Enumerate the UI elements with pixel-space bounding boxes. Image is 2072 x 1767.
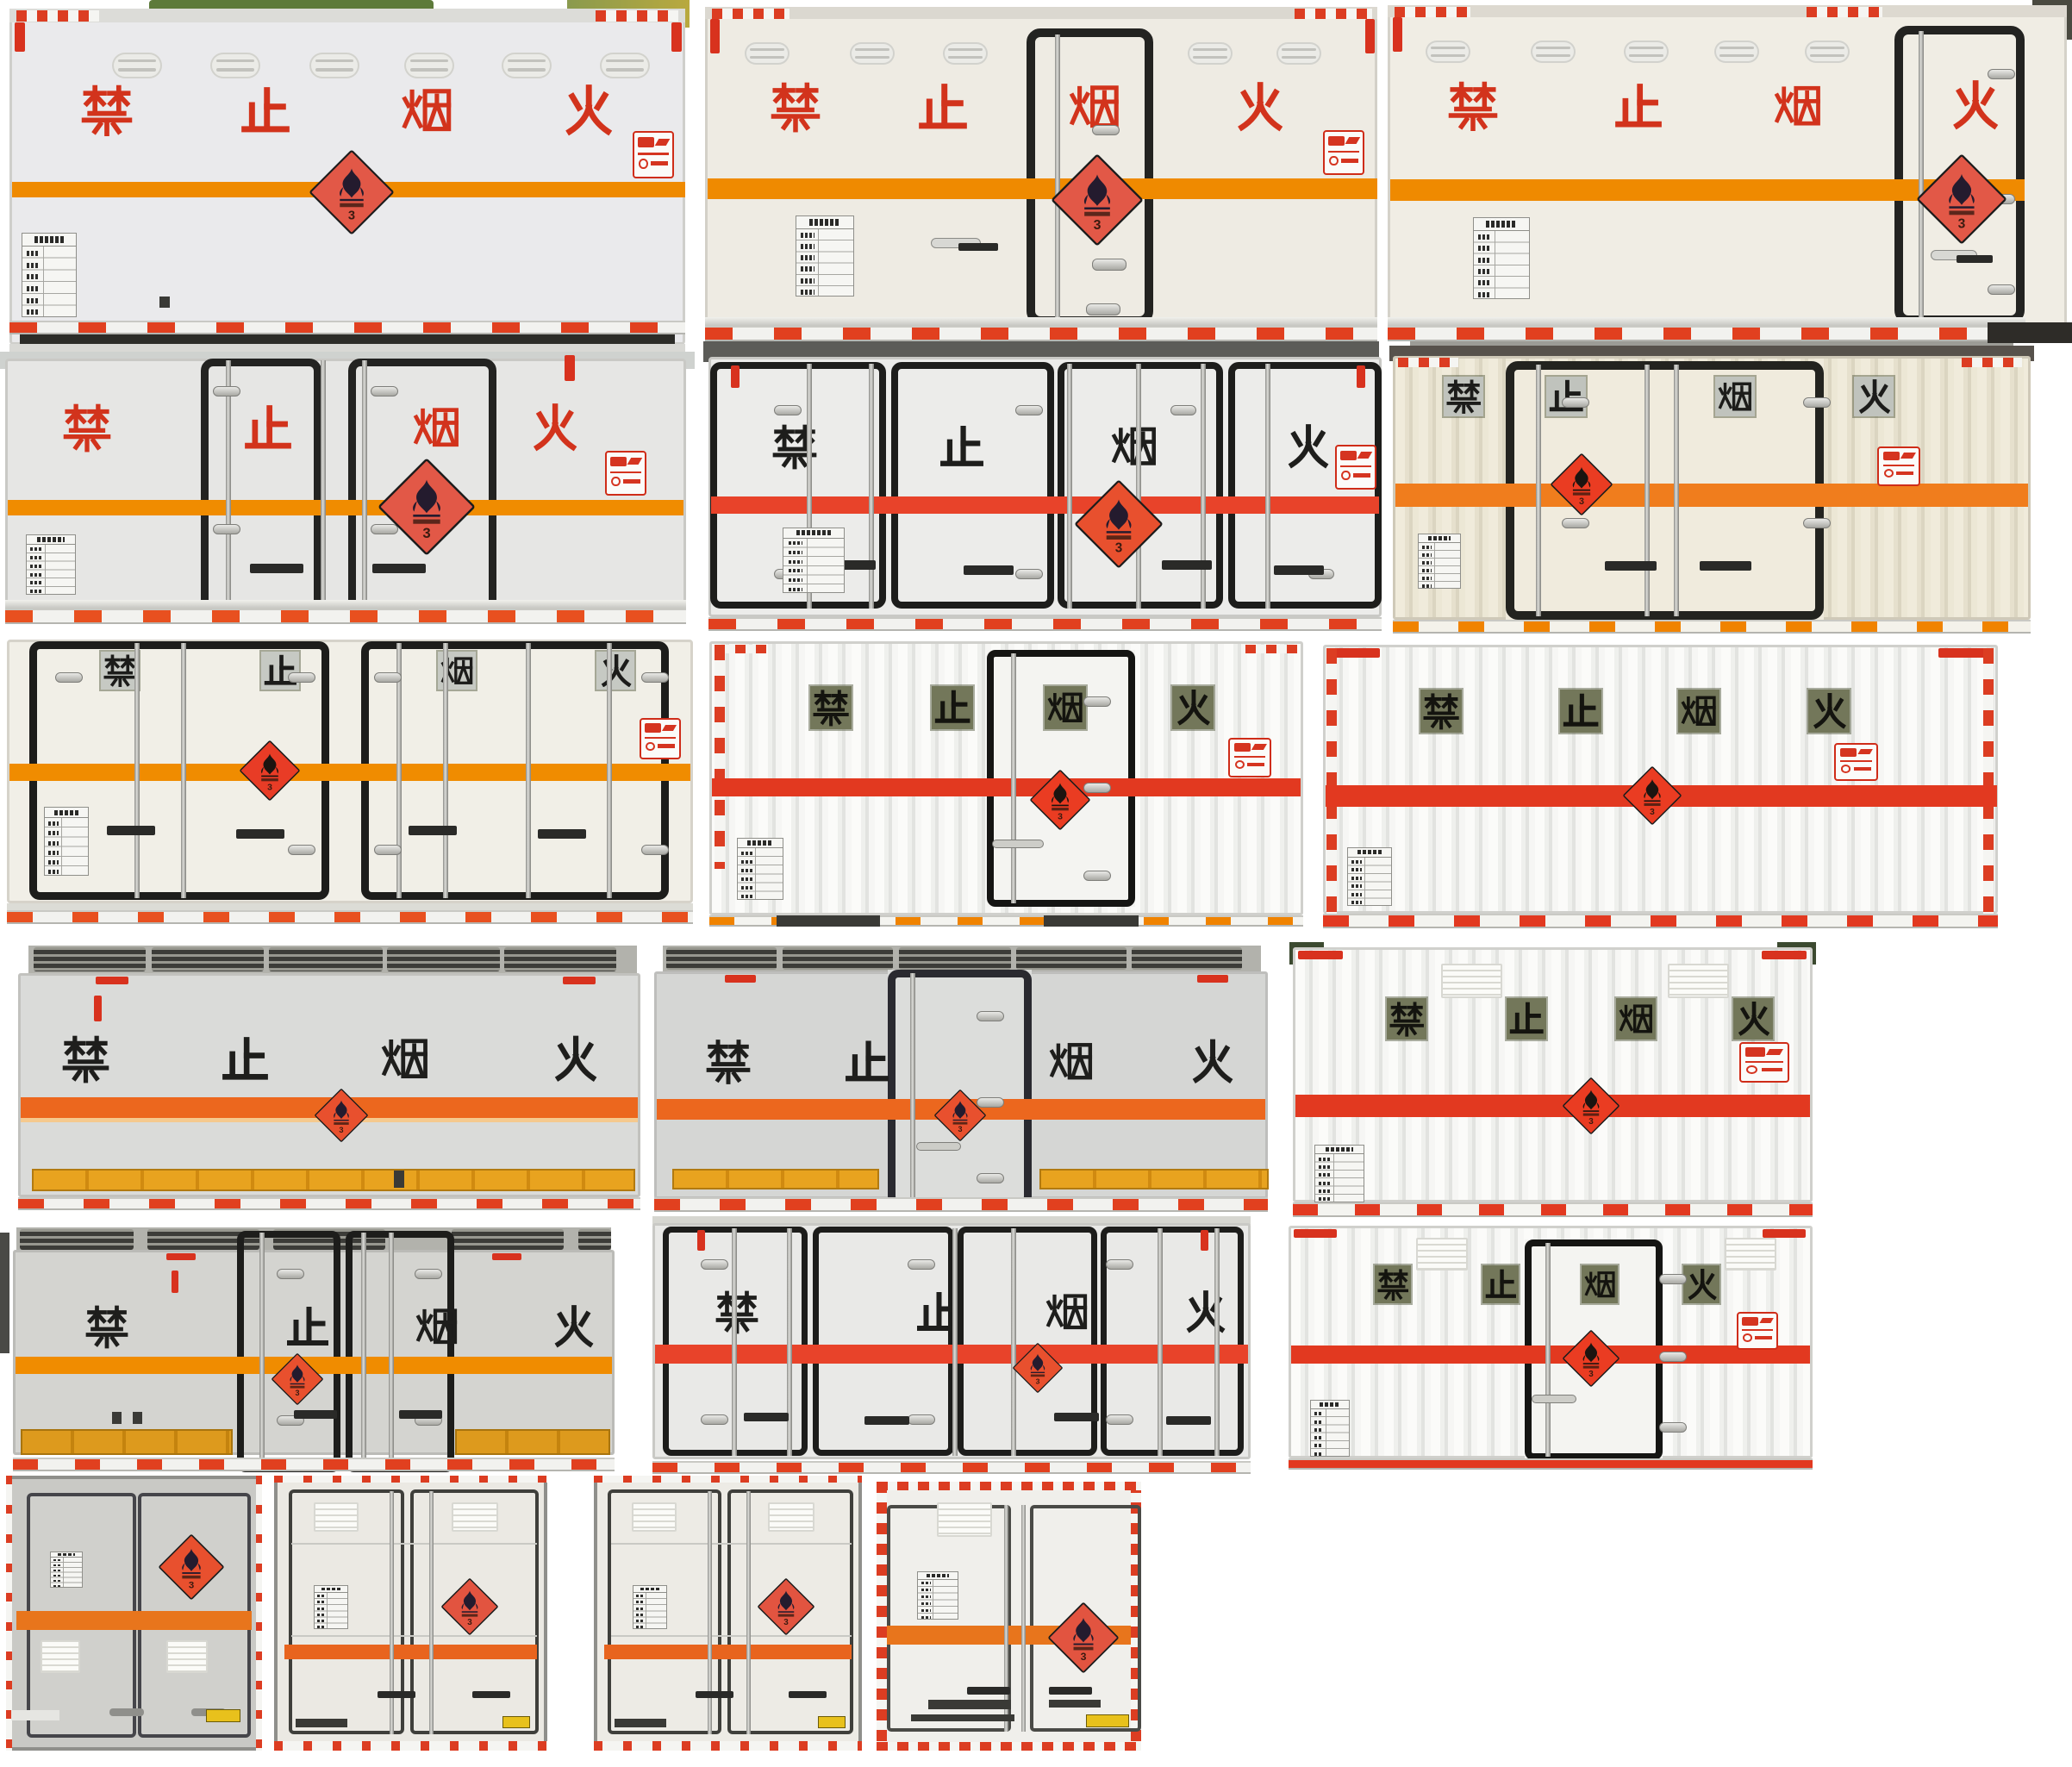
svg-text:3: 3 (1579, 496, 1584, 507)
svg-text:3: 3 (1650, 808, 1655, 817)
svg-text:3: 3 (1588, 1117, 1594, 1127)
svg-text:3: 3 (467, 1618, 472, 1627)
svg-text:3: 3 (1115, 541, 1123, 556)
svg-text:3: 3 (958, 1125, 962, 1133)
svg-text:3: 3 (1958, 216, 1966, 231)
svg-text:3: 3 (422, 525, 430, 541)
svg-text:3: 3 (1036, 1377, 1040, 1386)
svg-text:3: 3 (1058, 811, 1063, 821)
svg-text:3: 3 (295, 1389, 299, 1397)
svg-text:3: 3 (783, 1618, 789, 1627)
svg-text:3: 3 (348, 209, 355, 222)
svg-text:3: 3 (1588, 1370, 1594, 1379)
svg-text:3: 3 (339, 1126, 343, 1134)
svg-text:3: 3 (267, 782, 272, 792)
svg-text:3: 3 (1094, 218, 1102, 233)
svg-text:3: 3 (189, 1580, 194, 1590)
svg-text:3: 3 (1081, 1651, 1087, 1663)
